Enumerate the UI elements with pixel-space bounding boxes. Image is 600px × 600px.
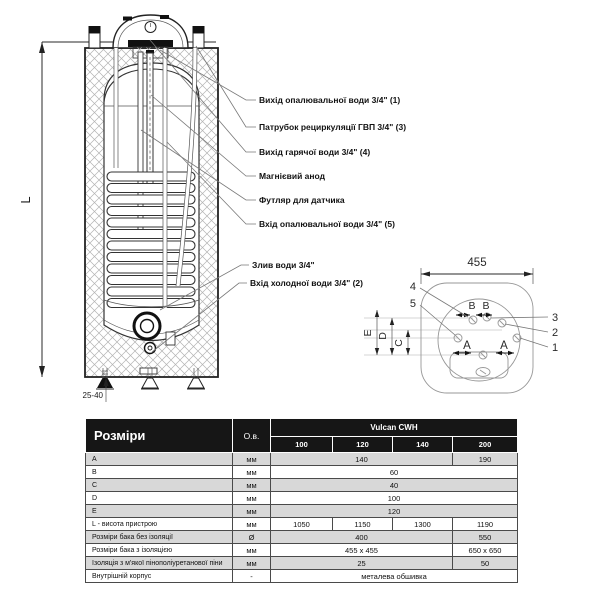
- callout-heating-out: Вихід опалювальної води 3/4" (1): [259, 95, 400, 105]
- row-unit: мм: [233, 557, 271, 570]
- callout-labels: Вихід опалювальної води 3/4" (1) Патрубо…: [250, 95, 406, 288]
- letter-B1: B: [468, 300, 475, 312]
- row-unit: мм: [233, 479, 271, 492]
- letter-A2: A: [500, 340, 508, 352]
- row-unit: -: [233, 570, 271, 583]
- table-row: E мм 120: [86, 505, 518, 518]
- boiler-cross-section: 25-40: [83, 15, 218, 402]
- row-label: Ізоляція з м'якої пінополіуретанової пін…: [86, 557, 233, 570]
- dimensions-table: Розміри О.в. Vulcan CWH 100 120 140 200 …: [85, 418, 518, 583]
- port-number-3: 3: [552, 312, 558, 324]
- row-label: Розміри бака без ізоляції: [86, 531, 233, 544]
- cell: 455 x 455: [271, 544, 453, 557]
- callout-drain: Злив води 3/4": [252, 260, 315, 270]
- row-label: C: [86, 479, 233, 492]
- callout-recirculation: Патрубок рециркуляції ГВП 3/4" (3): [259, 122, 406, 132]
- model-120: 120: [333, 437, 393, 453]
- top-view-width-label: 455: [467, 257, 486, 269]
- model-140: 140: [393, 437, 453, 453]
- row-label: E: [86, 505, 233, 518]
- cell: 1300: [393, 518, 453, 531]
- port-number-1: 1: [552, 342, 558, 354]
- cell: металева обшивка: [271, 570, 518, 583]
- port-number-2: 2: [552, 327, 558, 339]
- row-label: Розміри бака з ізоляцією: [86, 544, 233, 557]
- cell: 40: [271, 479, 518, 492]
- table-header-row: Розміри О.в. Vulcan CWH: [86, 419, 518, 437]
- row-label: D: [86, 492, 233, 505]
- table-row: L - висота пристрою мм 1050 1150 1300 11…: [86, 518, 518, 531]
- row-unit: мм: [233, 492, 271, 505]
- unit-column-header: О.в.: [233, 419, 271, 453]
- row-label: A: [86, 453, 233, 466]
- letter-D: D: [377, 332, 389, 340]
- callout-anode: Магнієвий анод: [259, 171, 326, 181]
- magnesium-anode: [146, 50, 154, 185]
- cell: 140: [271, 453, 453, 466]
- callout-hot-water-out: Вихід гарячої води 3/4" (4): [259, 147, 370, 157]
- cell: 60: [271, 466, 518, 479]
- row-label: Внутрішній корпус: [86, 570, 233, 583]
- letter-E: E: [362, 329, 374, 336]
- cell: 400: [271, 531, 453, 544]
- cell: 190: [453, 453, 518, 466]
- letter-C: C: [393, 339, 405, 347]
- table-row: Внутрішній корпус - металева обшивка: [86, 570, 518, 583]
- cell: 1190: [453, 518, 518, 531]
- feet-adjust-label: 25-40: [83, 391, 104, 400]
- letter-A1: A: [463, 340, 471, 352]
- row-unit: Ø: [233, 531, 271, 544]
- side-dimensions: E D C: [362, 310, 410, 355]
- cell: 120: [271, 505, 518, 518]
- cell: 1150: [333, 518, 393, 531]
- letter-B2: B: [482, 300, 489, 312]
- callout-cold-water-in: Вхід холодної води 3/4" (2): [250, 278, 363, 288]
- model-100: 100: [271, 437, 333, 453]
- boiler-diagram: L: [0, 0, 600, 414]
- table-row: D мм 100: [86, 492, 518, 505]
- row-label: L - висота пристрою: [86, 518, 233, 531]
- cell: 1050: [271, 518, 333, 531]
- table-row: A мм 140 190: [86, 453, 518, 466]
- callout-sensor-sleeve: Футляр для датчика: [259, 195, 345, 205]
- brand-header: Vulcan CWH: [271, 419, 518, 437]
- port-number-5: 5: [410, 298, 416, 310]
- top-view: 455: [362, 257, 558, 393]
- model-200: 200: [453, 437, 518, 453]
- cell: 650 x 650: [453, 544, 518, 557]
- row-unit: мм: [233, 544, 271, 557]
- table-row: C мм 40: [86, 479, 518, 492]
- cell: 550: [453, 531, 518, 544]
- callout-heating-in: Вхід опалювальної води 3/4" (5): [259, 219, 395, 229]
- row-unit: мм: [233, 518, 271, 531]
- row-unit: мм: [233, 466, 271, 479]
- row-unit: мм: [233, 453, 271, 466]
- table-row: Ізоляція з м'якої пінополіуретанової пін…: [86, 557, 518, 570]
- spec-sheet: L: [0, 0, 600, 600]
- table-row: Розміри бака без ізоляції Ø 400 550: [86, 531, 518, 544]
- cell: 25: [271, 557, 453, 570]
- port-number-4: 4: [410, 281, 416, 293]
- row-unit: мм: [233, 505, 271, 518]
- port-numbers: 4 5 3 2 1: [410, 281, 558, 354]
- cell: 100: [271, 492, 518, 505]
- dimension-L-label: L: [18, 196, 33, 203]
- table-row: Розміри бака з ізоляцією мм 455 x 455 65…: [86, 544, 518, 557]
- row-label: B: [86, 466, 233, 479]
- dimensions-table-wrap: Розміри О.в. Vulcan CWH 100 120 140 200 …: [85, 418, 517, 583]
- table-row: B мм 60: [86, 466, 518, 479]
- table-title: Розміри: [86, 419, 233, 453]
- cell: 50: [453, 557, 518, 570]
